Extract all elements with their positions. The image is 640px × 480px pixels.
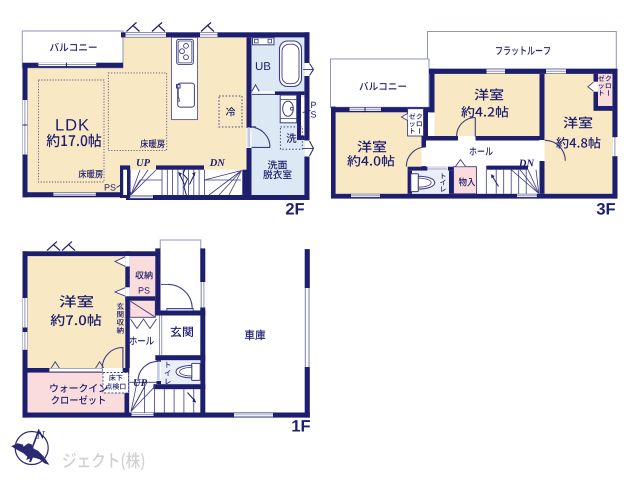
svg-text:N: N [36,430,46,442]
svg-text:S: S [310,110,316,120]
svg-text:DN: DN [518,158,535,169]
svg-text:3F: 3F [596,201,615,219]
svg-text:1F: 1F [291,418,310,436]
svg-text:PS: PS [104,183,116,193]
svg-text:2F: 2F [285,201,304,219]
svg-text:UP: UP [136,158,151,169]
svg-text:LDK: LDK [55,117,90,135]
svg-text:UP: UP [133,378,148,389]
svg-text:P: P [310,100,316,110]
svg-text:DN: DN [209,158,226,169]
svg-text:UB: UB [255,61,271,73]
svg-text:PS: PS [138,286,150,296]
